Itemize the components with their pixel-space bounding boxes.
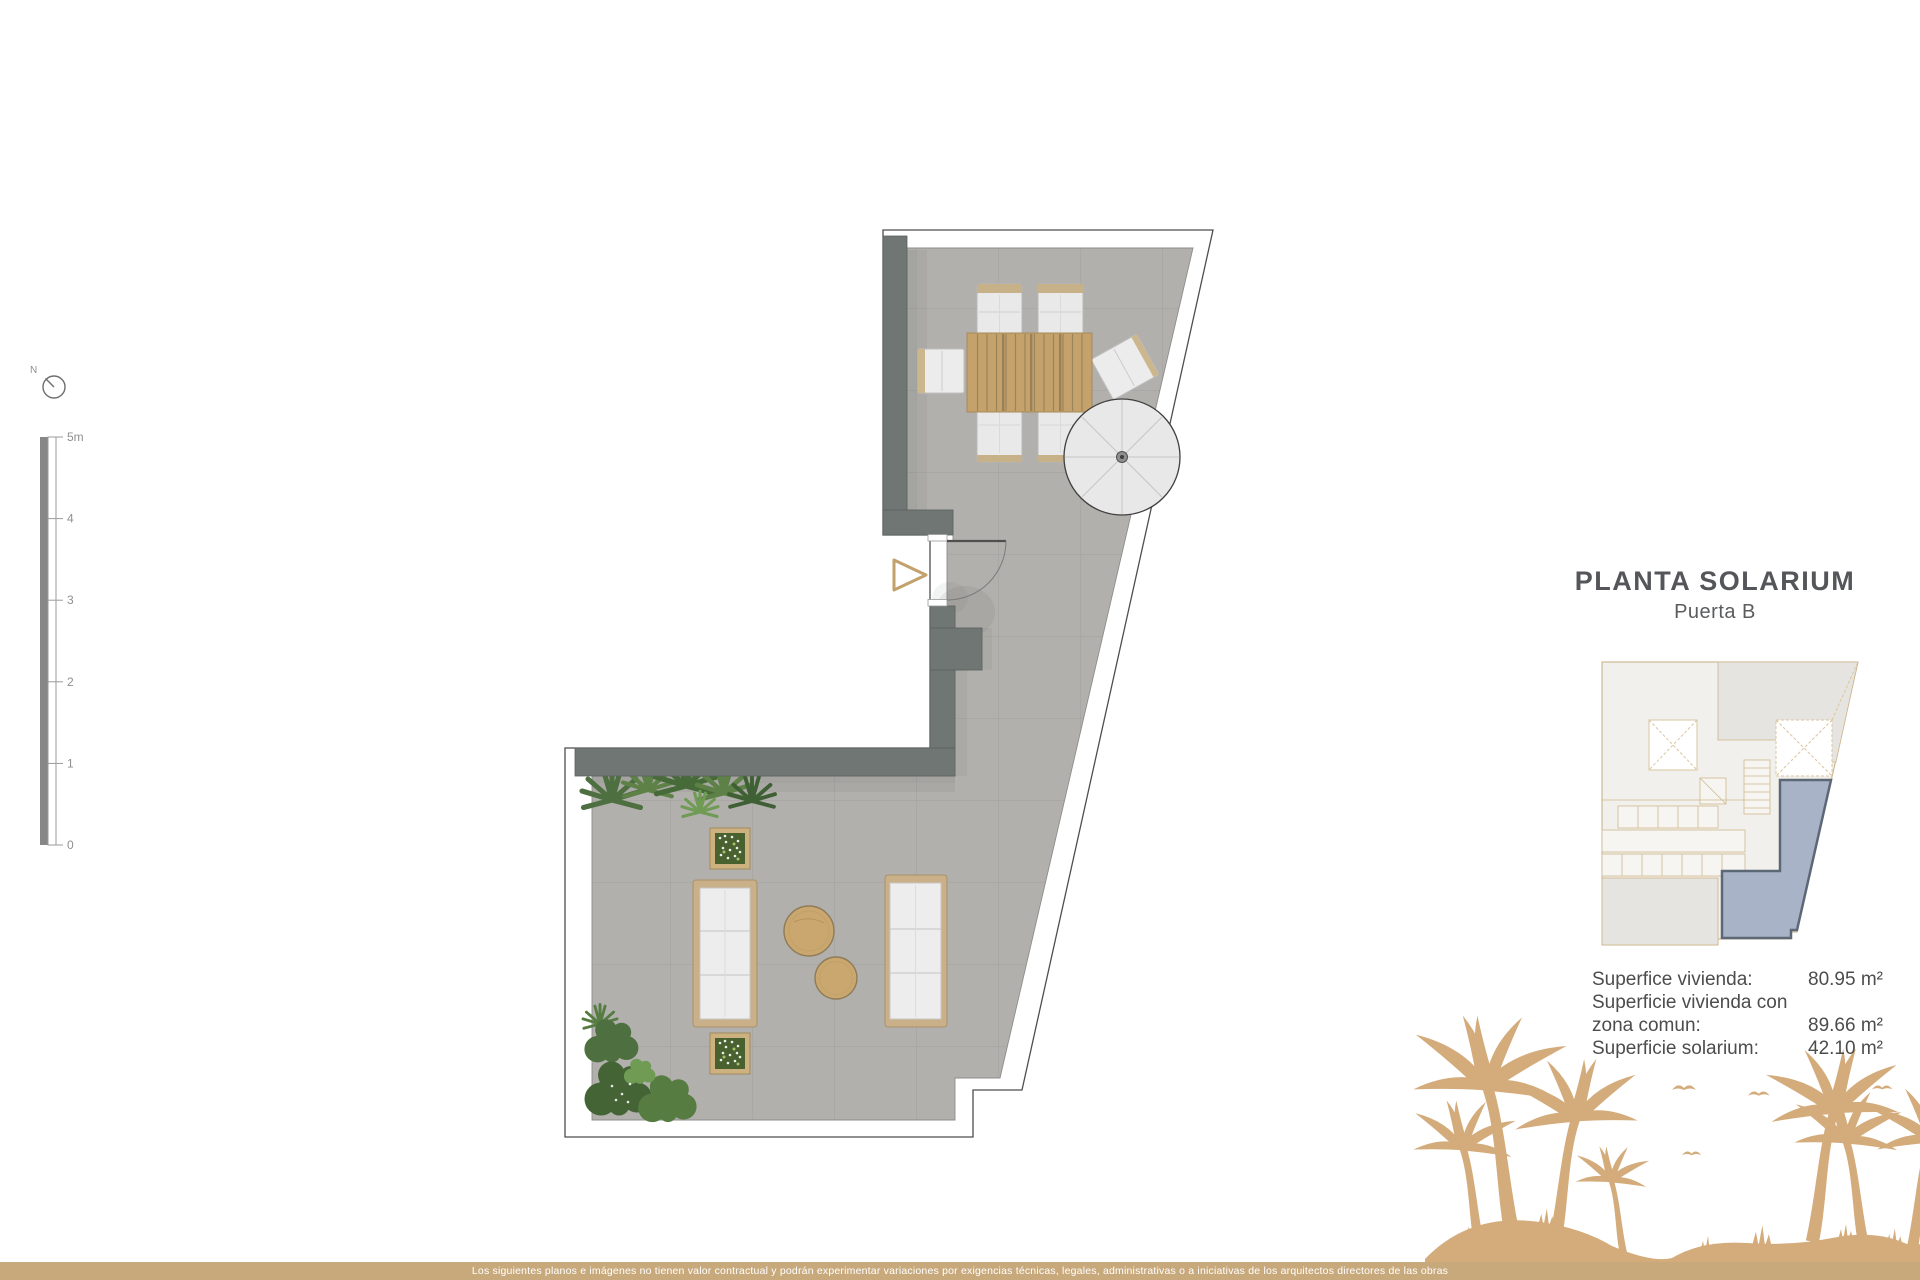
- scale-label-3: 3: [67, 593, 74, 607]
- area-row: Superficie solarium: 42.10 m²: [1592, 1037, 1902, 1060]
- scale-label-2: 2: [67, 675, 74, 689]
- coffee-table-small: [815, 957, 857, 999]
- page-subtitle: Puerta B: [1555, 601, 1875, 624]
- stairs: [1744, 760, 1770, 814]
- outdoor-sofa-right: [885, 875, 947, 1027]
- scale-label-0: 0: [67, 838, 74, 852]
- area-label: zona comun:: [1592, 1015, 1701, 1036]
- dining-chair-left: [918, 349, 964, 393]
- footer-disclaimer-bar: Los siguientes planos e imágenes no tien…: [0, 1262, 1920, 1280]
- outdoor-sofa-left: [693, 880, 757, 1027]
- scale-bar: 5m 4 3 2 1 0: [40, 430, 84, 852]
- area-value: 80.95 m²: [1808, 968, 1883, 991]
- scale-label-5m: 5m: [67, 430, 84, 444]
- coffee-table-large: [784, 906, 834, 956]
- plan-graphics: N 5m 4 3 2 1 0: [0, 0, 1920, 1280]
- mini-locator-plan: [1602, 662, 1858, 945]
- area-row: Superficie vivienda con: [1592, 991, 1902, 1014]
- main-floor-plan: [565, 230, 1213, 1137]
- dining-table: [967, 333, 1092, 412]
- plan-title-block: PLANTA SOLARIUM Puerta B: [1555, 566, 1875, 624]
- disclaimer-text: Los siguientes planos e imágenes no tien…: [0, 1262, 1920, 1280]
- north-compass-icon: N: [30, 365, 65, 398]
- compass-n-label: N: [30, 365, 37, 376]
- scale-label-4: 4: [67, 512, 74, 526]
- area-value: 42.10 m²: [1808, 1037, 1883, 1060]
- planter-box-2: [710, 1033, 750, 1074]
- surface-areas-table: Superfice vivienda: 80.95 m² Superficie …: [1592, 968, 1902, 1060]
- area-label: Superfice vivienda:: [1592, 969, 1753, 990]
- shaft-box-1: [1649, 720, 1697, 770]
- page-title: PLANTA SOLARIUM: [1555, 566, 1875, 597]
- area-row: Superfice vivienda: 80.95 m²: [1592, 968, 1902, 991]
- entrance-arrow-icon: [894, 560, 926, 590]
- area-label: Superficie vivienda con: [1592, 992, 1787, 1013]
- area-row: zona comun: 89.66 m²: [1592, 1014, 1902, 1037]
- floor-plan-page: N 5m 4 3 2 1 0: [0, 0, 1920, 1280]
- area-label: Superficie solarium:: [1592, 1038, 1759, 1059]
- parasol-umbrella: [1064, 399, 1180, 515]
- area-value: 89.66 m²: [1808, 1014, 1883, 1037]
- planter-box-1: [710, 828, 750, 869]
- scale-label-1: 1: [67, 756, 74, 770]
